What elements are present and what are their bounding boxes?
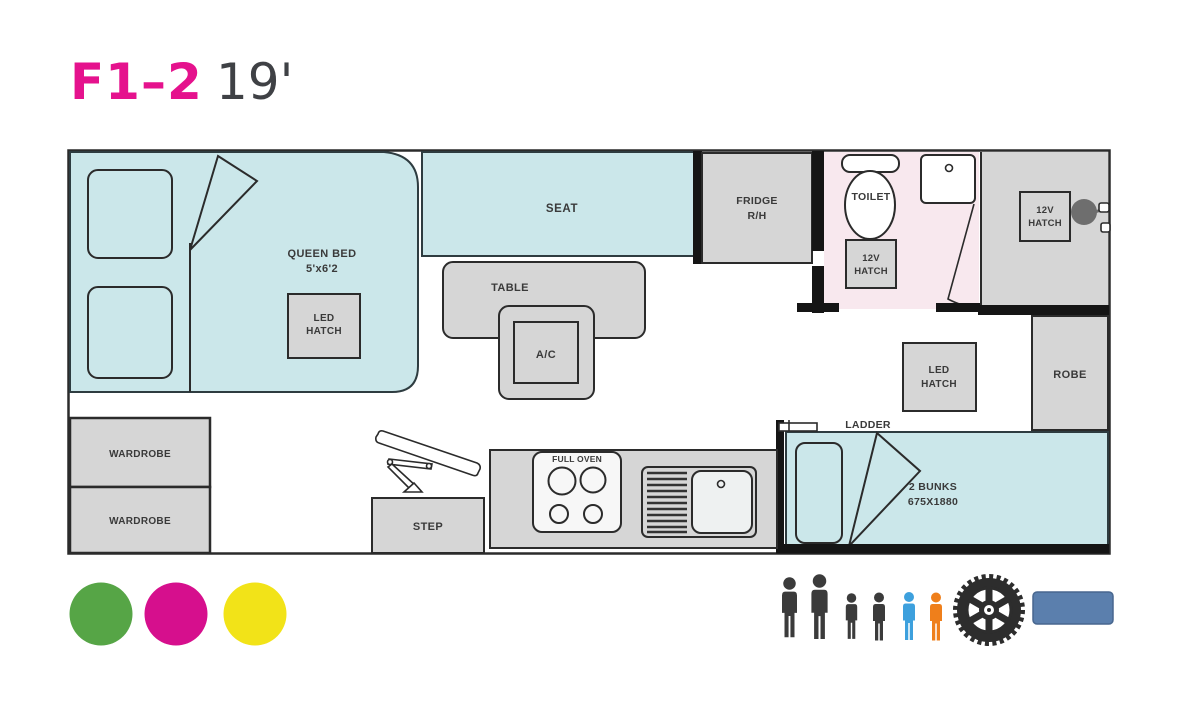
queen-bed-area: [70, 152, 418, 392]
feature-bar: [1033, 592, 1113, 624]
occupant-child-3: [903, 592, 915, 640]
floorplan-page: F1–2 19' QUEEN BED 5'x6'2 LED HATCH SEAT…: [0, 0, 1200, 702]
shower-12v-hatch: [1020, 192, 1070, 241]
bunk-wall-bottom: [776, 544, 1109, 554]
bathroom-wall-bottom-right: [936, 303, 980, 312]
bunks-label: 2 BUNKS: [909, 481, 957, 493]
bunks-size-label: 675X1880: [908, 496, 958, 508]
page-title-model: F1–2: [70, 53, 203, 111]
toilet-label: TOILET: [852, 191, 891, 203]
tire-icon: [956, 577, 1022, 643]
toilet: [845, 171, 895, 239]
bathroom-sink: [921, 155, 975, 203]
robe-label: ROBE: [1053, 369, 1086, 381]
queen-bed-label: QUEEN BED: [288, 248, 357, 260]
full-oven-label: FULL OVEN: [552, 454, 602, 464]
step-label: STEP: [413, 521, 443, 533]
floor-plan: QUEEN BED 5'x6'2 LED HATCH SEAT TABLE A/…: [69, 151, 1111, 554]
bathroom-wall-left-upper: [812, 151, 824, 251]
queen-bed-size-label: 5'x6'2: [306, 263, 338, 275]
stove: [533, 452, 621, 532]
wardrobe-bottom-label: WARDROBE: [109, 516, 171, 527]
yellow-dot: [224, 583, 287, 646]
rear-led-hatch-label-2: HATCH: [921, 379, 957, 390]
rear-led-hatch-label-1: LED: [929, 365, 950, 376]
bathroom-12v-hatch: [846, 240, 896, 288]
wardrobe-top-label: WARDROBE: [109, 449, 171, 460]
table-label: TABLE: [491, 282, 529, 294]
occupant-child-1: [846, 593, 857, 639]
shower-hatch-label-1: 12V: [1036, 205, 1054, 216]
ladder: [779, 423, 817, 431]
rear-led-hatch: [903, 343, 976, 411]
fridge-label-2: R/H: [748, 210, 767, 222]
occupant-child-2: [873, 593, 885, 641]
seat-label: SEAT: [546, 203, 578, 215]
occupant-child-4: [930, 593, 942, 641]
fridge: [702, 153, 812, 263]
occupant-adult-1: [782, 577, 797, 637]
bathroom-wall-bottom-left: [797, 303, 839, 312]
ladder-label: LADDER: [845, 419, 891, 431]
ac-label: A/C: [536, 349, 556, 361]
magenta-dot: [145, 583, 208, 646]
page-title-length: 19': [216, 53, 293, 111]
legend: [70, 574, 1114, 645]
bed-led-hatch-label-2: HATCH: [306, 326, 342, 337]
fridge-label-1: FRIDGE: [736, 195, 777, 207]
bathroom-hatch-label-2: HATCH: [854, 266, 888, 277]
toilet-cistern: [842, 155, 899, 172]
bathroom-hatch-label-1: 12V: [862, 253, 880, 264]
occupant-adult-2: [811, 574, 827, 639]
fridge-wall-left: [693, 151, 702, 264]
shower-wall-bottom: [978, 305, 1109, 315]
shower-hatch-label-2: HATCH: [1028, 218, 1062, 229]
green-dot: [70, 583, 133, 646]
bed-led-hatch-label-1: LED: [314, 313, 335, 324]
